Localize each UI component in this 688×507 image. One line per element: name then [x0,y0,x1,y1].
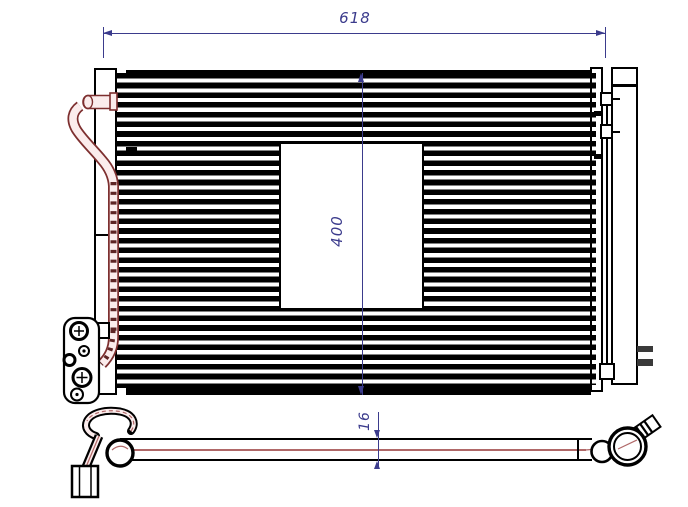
thickness-dim-line [378,412,379,468]
width-dim-arrow-right-icon [596,30,605,36]
thickness-dim-label: 16 [357,406,373,436]
right-tank-tube-stubs [592,73,596,385]
height-dim-arrow-bottom-icon [358,386,364,395]
side-view-centerline [126,449,586,451]
fitting-hole-3-dot [75,393,78,396]
pipe-top-flange [110,93,117,110]
receiver-drier [611,67,638,385]
service-port-mid [600,124,613,139]
height-dim-label: 400 [329,211,345,251]
inlet-pipe-and-fitting-block [60,85,140,405]
thickness-dim-arrow-bottom-icon [374,461,380,469]
height-dim-arrow-top-icon [358,73,364,82]
width-dim-arrow-left-icon [103,30,112,36]
right-tank-baffle-2 [594,154,602,159]
service-port-bottom [599,363,615,380]
right-tank-baffle-1 [594,111,602,116]
drier-bracket-line [613,84,636,87]
condenser-drawing-canvas: 618 [0,0,688,507]
width-dim-line [103,33,605,34]
service-pipe [606,106,608,364]
fitting-hole-1-dot [82,349,85,352]
left-fitting-connector-block [72,466,98,497]
side-view-left-fitting [58,403,143,505]
drier-mount-tab-1 [637,346,653,352]
drier-mount-tab-2 [637,359,653,366]
service-port-mid-tick [613,131,620,133]
core-center-cutout [279,144,424,308]
pipe-top-stub [83,96,112,109]
width-dim-label: 618 [325,10,385,28]
height-dim-line [362,73,363,395]
side-view-right-fitting [583,408,688,483]
thickness-dim-arrow-top-icon [374,430,380,438]
side-view-divider [577,438,579,461]
service-port-top [600,92,613,106]
left-fitting-pipe-ring [107,440,133,466]
service-port-top-tick [613,98,620,100]
